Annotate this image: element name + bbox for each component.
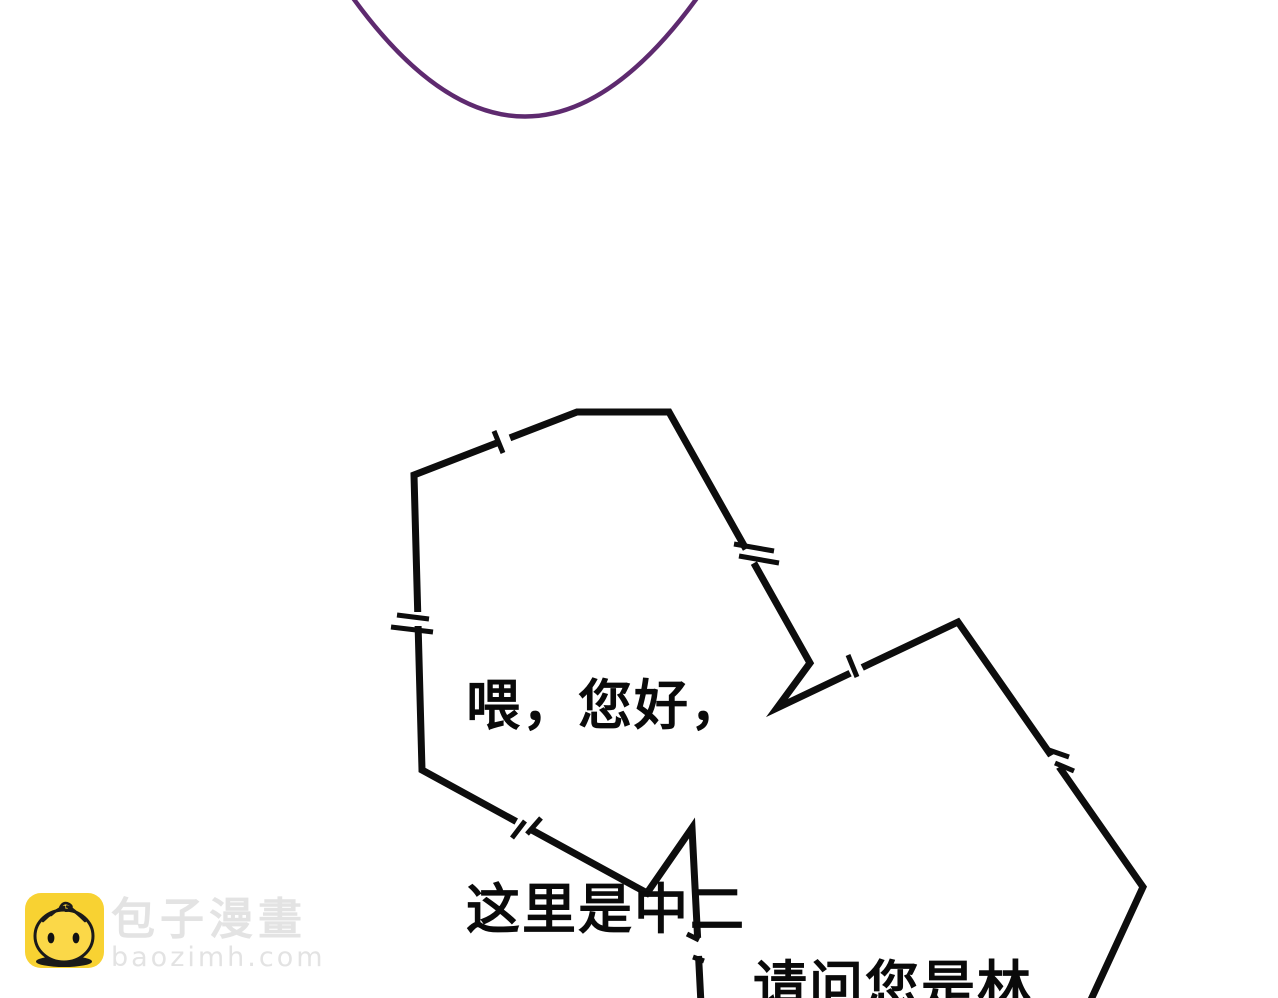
baozi-bun-icon — [25, 893, 104, 968]
watermark-site-domain: baozimh.com — [111, 944, 326, 971]
bun-eye-right — [73, 933, 80, 944]
watermark-site-name: 包子漫畫 — [111, 897, 326, 943]
watermark-text: 包子漫畫 baozimh.com — [111, 893, 326, 971]
bubble-line: 喂，您好， — [466, 672, 746, 740]
baozimh-watermark: 包子漫畫 baozimh.com — [25, 893, 326, 971]
bun-body — [35, 910, 93, 962]
speech-bubble-1-text: 喂，您好， 这里是中二 医院， — [466, 536, 746, 998]
bubble-line: 请问您是林 — [753, 953, 1033, 998]
bubble-line: 这里是中二 — [466, 876, 746, 944]
purple-arc-decoration — [353, 0, 697, 117]
comic-panel[interactable]: 喂，您好， 这里是中二 医院， 请问您是林 继善的孙女 么？ — [0, 0, 1278, 998]
speech-bubble-2-text: 请问您是林 继善的孙女 么？ — [753, 817, 1033, 998]
bun-eye-left — [48, 933, 55, 944]
